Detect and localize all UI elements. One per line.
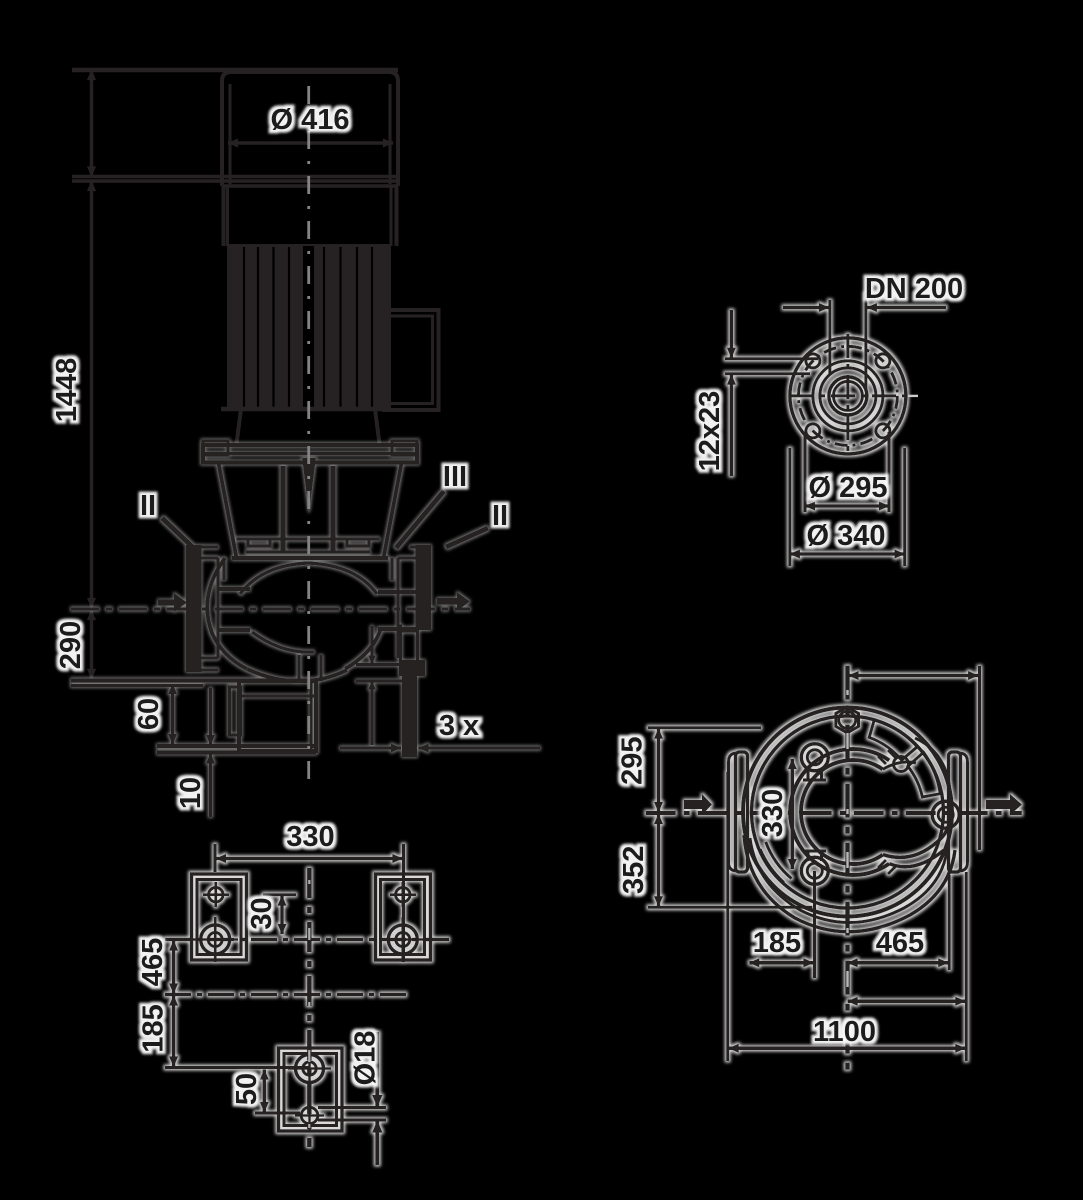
svg-text:Ø 340: Ø 340: [807, 520, 886, 552]
svg-text:Ø18: Ø18: [350, 1031, 382, 1086]
svg-text:1448: 1448: [51, 358, 83, 423]
svg-text:1100: 1100: [813, 1016, 876, 1048]
svg-text:352: 352: [618, 846, 650, 894]
svg-text:185: 185: [753, 927, 801, 959]
svg-text:330: 330: [286, 821, 334, 853]
svg-text:3 x: 3 x: [439, 710, 479, 742]
svg-text:290: 290: [55, 621, 87, 669]
svg-text:III: III: [443, 461, 467, 493]
svg-text:330: 330: [757, 789, 789, 837]
svg-text:50: 50: [231, 1073, 263, 1105]
svg-text:Ø 295: Ø 295: [809, 472, 888, 504]
svg-text:60: 60: [133, 698, 165, 730]
svg-text:II: II: [140, 490, 156, 522]
svg-text:465: 465: [137, 938, 169, 986]
svg-text:465: 465: [876, 927, 924, 959]
svg-text:DN 200: DN 200: [865, 273, 963, 305]
svg-text:12x23: 12x23: [694, 391, 726, 472]
svg-text:185: 185: [138, 1004, 170, 1052]
svg-text:Ø 416: Ø 416: [271, 104, 350, 136]
svg-text:10: 10: [175, 777, 207, 809]
svg-text:295: 295: [617, 737, 649, 785]
svg-text:II: II: [492, 500, 508, 532]
svg-text:30: 30: [246, 897, 278, 929]
